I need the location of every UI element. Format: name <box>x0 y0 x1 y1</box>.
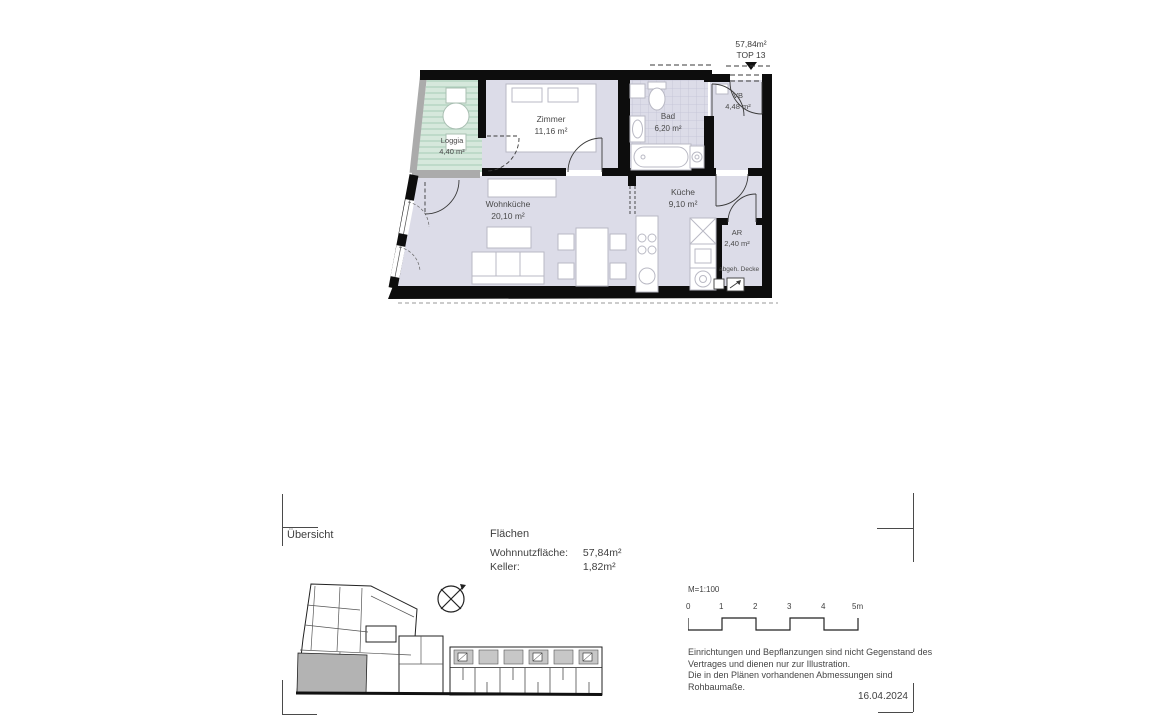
scale-label: M=1:100 <box>688 585 719 594</box>
room-area: 11,16 m² <box>509 125 593 137</box>
scale-tick: 2 <box>753 602 757 611</box>
area-row: Wohnnutzfläche: 57,84m² <box>490 546 621 560</box>
room-name: AR <box>708 228 766 239</box>
burner <box>638 234 646 242</box>
room-name: Bad <box>634 111 702 123</box>
loggia-table <box>443 103 469 129</box>
room-label-bad: Bad 6,20 m² <box>634 111 702 134</box>
area-value: 1,82m² <box>583 561 616 573</box>
chair <box>558 263 574 279</box>
floorplan-sheet: 57,84m² TOP 13 <box>0 0 1152 719</box>
loggia-chair <box>446 88 466 103</box>
scale-bar-graphic <box>688 616 862 632</box>
plan-date: 16.04.2024 <box>836 691 908 702</box>
scale-tick: 5m <box>852 602 863 611</box>
sofa <box>472 252 544 284</box>
ceiling-arrow-symbol <box>714 278 744 291</box>
room-label-wohnkueche: Wohnküche 20,10 m² <box>462 198 554 223</box>
room-label-loggia: Loggia 4,40 m² <box>424 136 480 158</box>
site-overview-plan <box>290 580 610 712</box>
disclaimer-line: Einrichtungen und Bepflanzungen sind nic… <box>688 647 932 659</box>
area-row: Keller: 1,82m² <box>490 560 621 574</box>
disclaimer-line: Die in den Plänen vorhandenen Abmessunge… <box>688 670 932 682</box>
sink-basin <box>639 268 655 284</box>
areas-title: Flächen <box>490 528 621 540</box>
burner <box>638 246 646 254</box>
overview-title: Übersicht <box>287 529 333 541</box>
burner <box>648 234 656 242</box>
ceiling-note: abgeh. Decke <box>719 266 759 273</box>
site-base-line <box>296 693 602 695</box>
disclaimer: Einrichtungen und Bepflanzungen sind nic… <box>688 647 932 693</box>
shelf <box>630 84 645 98</box>
room-label-zimmer: Zimmer 11,16 m² <box>509 113 593 138</box>
room-area: 2,40 m² <box>708 239 766 250</box>
coffee-table <box>487 227 531 248</box>
scale-tick: 1 <box>719 602 723 611</box>
scale-tick: 0 <box>686 602 690 611</box>
areas-block: Flächen Wohnnutzfläche: 57,84m² Keller: … <box>490 528 621 574</box>
room-area: 6,20 m² <box>634 123 702 135</box>
room-name: Küche <box>648 186 718 198</box>
room-name: VB <box>708 91 768 102</box>
room-name: Loggia <box>424 136 480 147</box>
north-symbol <box>438 584 466 612</box>
scale-tick: 4 <box>821 602 825 611</box>
area-label: Keller: <box>490 560 580 574</box>
room-name: Wohnküche <box>462 198 554 210</box>
room-label-ar: AR 2,40 m² <box>708 228 766 250</box>
scale-tick: 3 <box>787 602 791 611</box>
room-label-vb: VB 4,48 m² <box>708 91 768 113</box>
chair <box>610 263 626 279</box>
chair <box>558 234 574 250</box>
dining-table <box>576 228 608 286</box>
washing-machine <box>690 146 704 168</box>
room-area: 4,40 m² <box>424 147 480 158</box>
wc-bowl <box>649 88 665 110</box>
room-label-kueche: Küche 9,10 m² <box>648 186 718 211</box>
sideboard <box>488 179 556 197</box>
bathtub <box>631 144 691 170</box>
room-area: 20,10 m² <box>462 210 554 222</box>
area-value: 57,84m² <box>583 547 622 559</box>
scale-bar: M=1:100 0 1 2 3 4 5m <box>688 585 868 637</box>
room-name: Zimmer <box>509 113 593 125</box>
area-label: Wohnnutzfläche: <box>490 546 580 560</box>
chair <box>610 234 626 250</box>
room-area: 4,48 m² <box>708 102 768 113</box>
disclaimer-line: Vertrages und dienen nur zur Illustratio… <box>688 659 932 671</box>
room-area: 9,10 m² <box>648 198 718 210</box>
burner <box>648 246 656 254</box>
highlighted-unit <box>297 653 367 694</box>
